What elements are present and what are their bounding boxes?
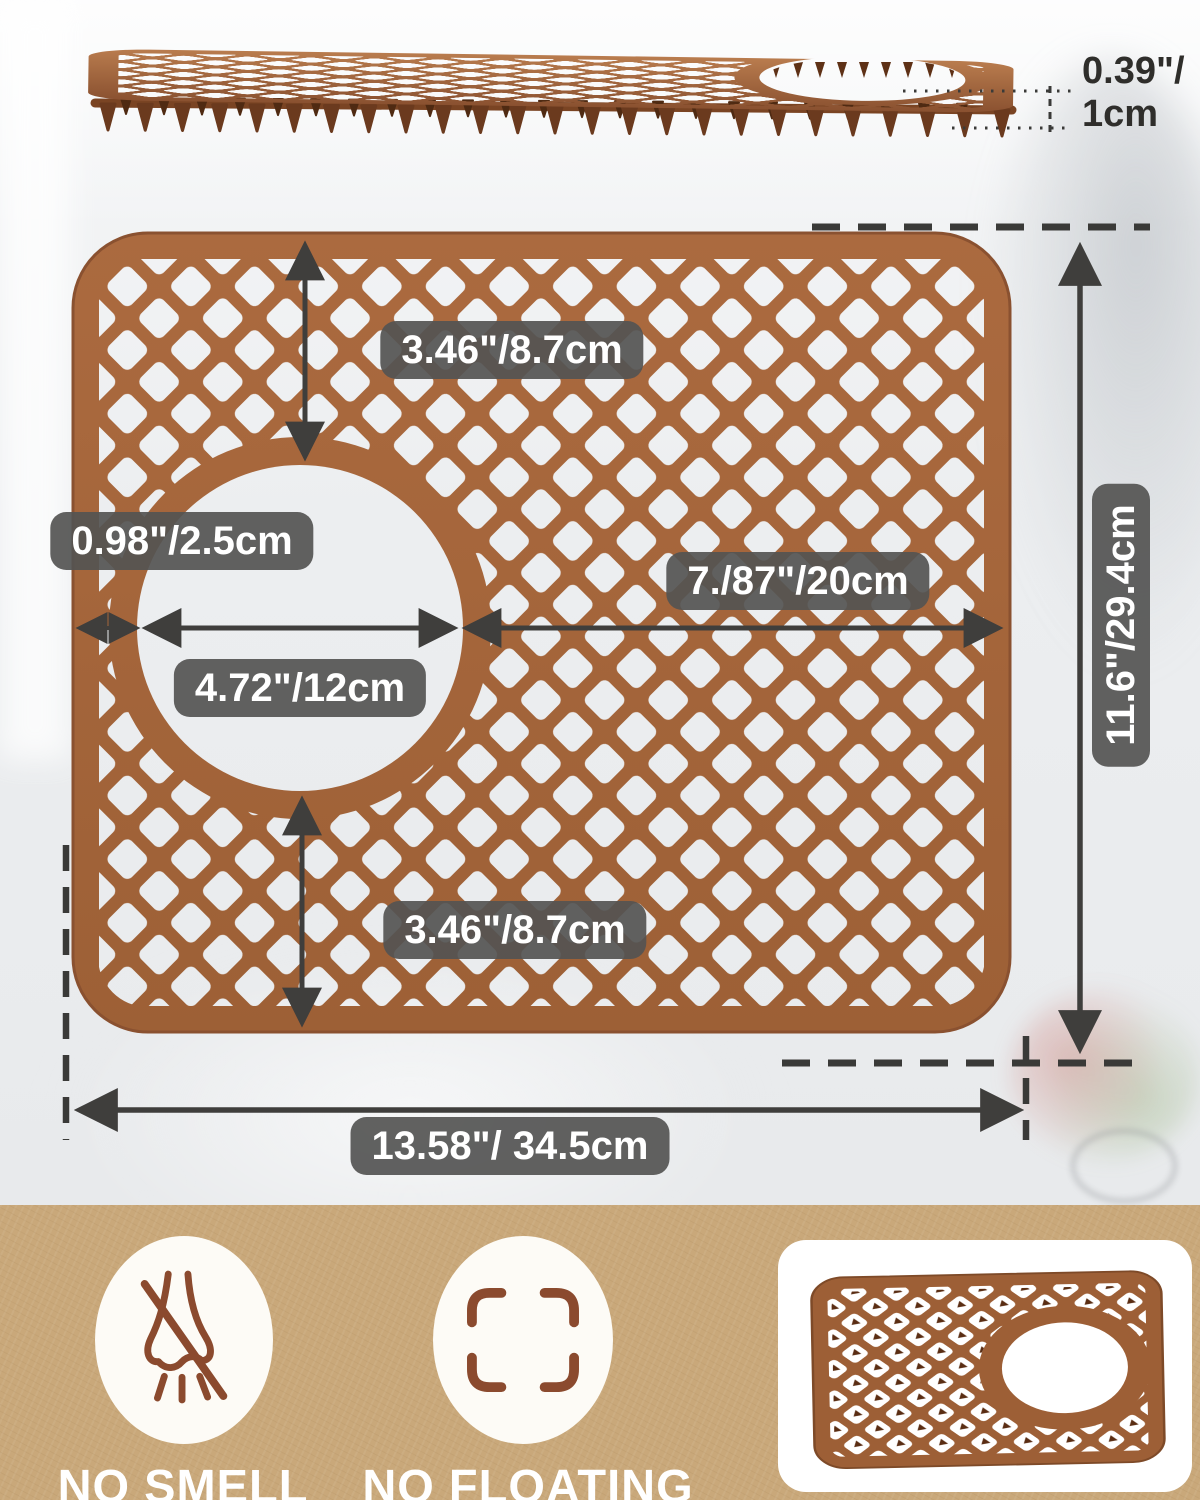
feature-circle-no-floating [433, 1236, 613, 1444]
no-floating-frame-icon [464, 1285, 582, 1395]
dimension-label-edge-to-hole: 0.98"/2.5cm [50, 512, 313, 570]
thickness-line1: 0.39"/ [1082, 50, 1185, 93]
product-thumbnail-card [778, 1240, 1192, 1492]
no-smell-nose-icon [125, 1266, 243, 1414]
side-view-mat [88, 49, 1014, 136]
dimension-label-total-width: 13.58"/ 34.5cm [351, 1117, 670, 1175]
thickness-annotation: 0.39"/ 1cm [1082, 50, 1185, 137]
dimension-label-hole-to-edge: 7./87"/20cm [666, 552, 929, 610]
dimension-label-bottom-height: 3.46"/8.7cm [383, 901, 646, 959]
product-thumbnail [778, 1240, 1192, 1492]
thickness-line2: 1cm [1082, 93, 1185, 136]
feature-circle-no-smell [95, 1236, 273, 1444]
feature-label-no-floating: NO FLOATING [362, 1459, 693, 1500]
feature-label-no-smell: NO SMELL [58, 1459, 309, 1500]
dimension-label-hole-diameter: 4.72"/12cm [174, 659, 426, 717]
dimension-label-total-height: 11.6"/29.4cm [1092, 483, 1150, 766]
dimension-label-top-height: 3.46"/8.7cm [380, 321, 643, 379]
product-dimension-infographic: 3.46"/8.7cm 0.98"/2.5cm 4.72"/12cm 7./87… [0, 0, 1200, 1500]
